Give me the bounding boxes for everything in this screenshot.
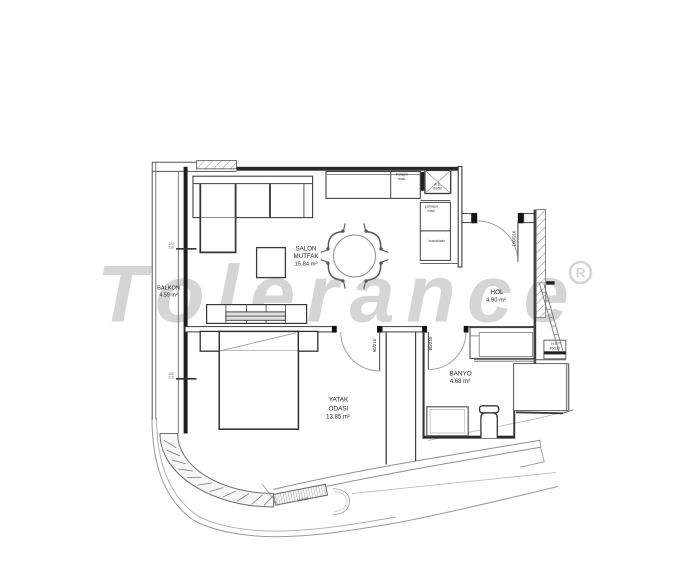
svg-text:buzdolabı: buzdolabı	[429, 239, 445, 243]
svg-text:4.59 m²: 4.59 m²	[159, 292, 177, 298]
svg-text:50/50: 50/50	[433, 187, 442, 191]
svg-text:BALKON: BALKON	[157, 286, 180, 292]
svg-text:SALON: SALON	[296, 245, 317, 252]
svg-text:bulaşık: bulaşık	[396, 173, 408, 177]
svg-text:MUTFAK: MUTFAK	[293, 253, 319, 260]
svg-text:çamaşır: çamaşır	[425, 204, 439, 208]
svg-text:15.84 m²: 15.84 m²	[295, 261, 318, 267]
svg-text:80/210: 80/210	[428, 336, 433, 350]
svg-text:mak.: mak.	[398, 177, 406, 181]
svg-text:R: R	[576, 266, 586, 281]
svg-text:210: 210	[168, 376, 174, 380]
svg-text:ODASI: ODASI	[329, 406, 349, 413]
svg-text:4.68 m²: 4.68 m²	[450, 379, 470, 385]
svg-text:210: 210	[168, 246, 174, 250]
svg-text:BANYO: BANYO	[449, 370, 471, 377]
svg-text:mak.: mak.	[427, 209, 435, 213]
svg-text:4.90 m²: 4.90 m²	[486, 297, 506, 303]
svg-text:13.85 m²: 13.85 m²	[326, 415, 350, 421]
svg-text:YATAK: YATAK	[329, 397, 349, 404]
svg-text:HOL: HOL	[491, 289, 504, 296]
svg-text:90/210: 90/210	[372, 338, 377, 352]
svg-text:100/210: 100/210	[512, 230, 517, 246]
